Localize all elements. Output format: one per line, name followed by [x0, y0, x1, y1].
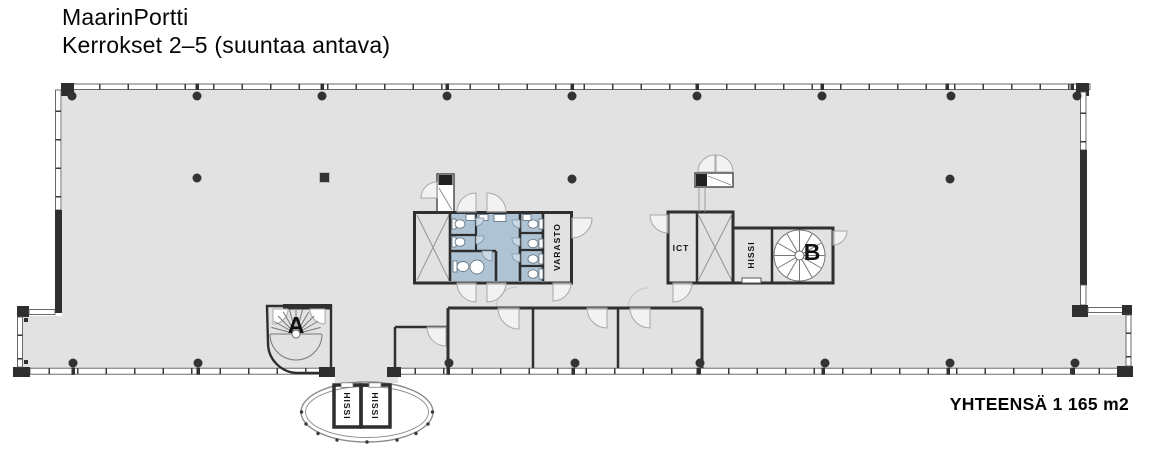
column-square — [320, 173, 330, 183]
hissi-core-label: HISSI — [746, 241, 756, 268]
column-dot — [818, 92, 827, 101]
column-dot — [693, 92, 702, 101]
hissi-bay-right-label: HISSI — [370, 392, 380, 419]
stair-a-label: A — [288, 312, 305, 338]
column-dot — [571, 359, 580, 368]
column-dot — [1073, 92, 1082, 101]
window-wall-right-extension — [1088, 308, 1124, 313]
column-dot — [568, 175, 577, 184]
column-dot — [318, 92, 327, 101]
column-dot — [696, 359, 705, 368]
column-dot — [821, 359, 830, 368]
ict-label: ICT — [673, 243, 690, 253]
column-dot — [193, 174, 202, 183]
column-dot — [946, 175, 955, 184]
column-dot — [443, 92, 452, 101]
stair-b-label: B — [804, 239, 821, 265]
column-dot — [193, 92, 202, 101]
hissi-bay-left-label: HISSI — [342, 392, 352, 419]
varasto-label: VARASTO — [552, 223, 562, 271]
solid-wall-left — [55, 210, 62, 313]
duct-left-core — [437, 174, 454, 212]
elevator-door-mark — [742, 278, 761, 283]
floor-plan-page: MaarinPortti Kerrokset 2–5 (suuntaa anta… — [0, 0, 1155, 451]
bay-canopy-outer — [301, 382, 433, 442]
column-dot — [946, 359, 955, 368]
window-wall-top — [62, 84, 1090, 90]
column-dot — [947, 92, 956, 101]
column-dot — [568, 92, 577, 101]
column-dot — [68, 92, 77, 101]
solid-wall-right — [1080, 150, 1087, 285]
window-wall-left — [56, 90, 62, 210]
column-dot — [194, 359, 203, 368]
floor-plan-drawing: VARASTO ICT HISSI HISSI HISSI A B — [0, 0, 1155, 451]
elevator-bay — [300, 382, 434, 444]
column-dot — [69, 359, 78, 368]
column-dot — [1071, 359, 1080, 368]
column-dot — [445, 359, 454, 368]
